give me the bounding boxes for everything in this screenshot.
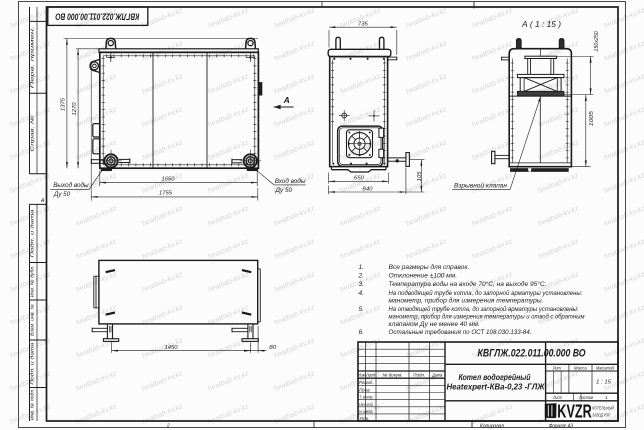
svg-text:Отклонение ±100 мм.: Отклонение ±100 мм. [389,272,458,279]
svg-text:Все размеры для справок.: Все размеры для справок. [389,263,470,271]
svg-text:1270: 1270 [72,102,78,116]
svg-text:Нач. отд.: Нач. отд. [359,402,373,407]
svg-text:1755: 1755 [159,191,173,197]
svg-text:Листов: Листов [578,395,594,400]
svg-text:4.: 4. [359,290,365,297]
svg-text:Подп. и дата: Подп. и дата [30,342,35,385]
svg-text:Температура воды на входе 70°С: Температура воды на входе 70°С, на выход… [389,280,547,288]
svg-text:Утв.: Утв. [359,416,369,421]
svg-text:А: А [283,95,290,105]
svg-text:650: 650 [354,176,365,182]
svg-text:Изм: Изм [358,373,366,378]
svg-text:Лист: Лист [365,373,375,378]
svg-text:840: 840 [363,187,374,193]
svg-text:5.: 5. [359,306,365,313]
svg-text:2: 2 [166,423,170,428]
svg-text:Т. контр.: Т. контр. [359,395,373,400]
svg-text:Пров.: Пров. [359,387,370,392]
svg-text:На подводящей трубе котла, до: На подводящей трубе котла, до запорной а… [389,289,583,297]
svg-text:150х250: 150х250 [594,30,600,51]
svg-text:105: 105 [417,171,423,182]
svg-text:80: 80 [269,345,277,351]
svg-text:Лист: Лист [552,395,562,400]
svg-text:Инв. № подл.: Инв. № подл. [30,388,35,420]
svg-text:KVZR: KVZR [557,401,592,422]
svg-text:Перв. примен.: Перв. примен. [30,26,35,88]
svg-text:1005: 1005 [589,110,595,126]
svg-text:ЗАВОД РЭП: ЗАВОД РЭП [592,413,611,418]
svg-text:манометр, прибор для измерения: манометр, прибор для измерения температу… [389,313,585,321]
svg-text:Котел водогрейный: Котел водогрейный [459,373,531,382]
svg-text:Дата: Дата [431,373,442,378]
svg-text:клапаном Ду не менее 40 мм.: клапаном Ду не менее 40 мм. [389,321,481,328]
svg-text:1 : 15: 1 : 15 [596,380,612,386]
svg-text:1450: 1450 [165,345,179,351]
svg-text:Выход воды: Выход воды [53,181,89,189]
svg-text:Остальные требования по ОСТ 10: Остальные требования по ОСТ 108.030.133-… [389,328,532,336]
svg-text:Ду 50: Ду 50 [275,187,293,194]
svg-text:Heatexpert-КВа-0,23 -ГЛЖ: Heatexpert-КВа-0,23 -ГЛЖ [447,383,546,392]
svg-text:Инв. № дубл.: Инв. № дубл. [30,265,35,297]
svg-text:Вход воды: Вход воды [275,177,306,185]
svg-text:Справ. №: Справ. № [30,115,35,151]
svg-text:Формат А3: Формат А3 [549,423,573,429]
svg-text:А: А [40,198,45,204]
svg-text:КВГЛЖ.022.011.00.000 ВО: КВГЛЖ.022.011.00.000 ВО [478,348,586,360]
svg-text:Масштаб: Масштаб [596,366,615,371]
svg-text:3.: 3. [359,281,365,288]
svg-text:Копировал: Копировал [480,423,504,429]
svg-text:Подп.: Подп. [413,373,425,378]
svg-text:Н. контр.: Н. контр. [359,409,373,414]
svg-text:КВГЛЖ.022.011.00.000 ВО: КВГЛЖ.022.011.00.000 ВО [55,11,139,21]
svg-text:Лит.: Лит. [552,366,562,371]
svg-text:Ду 50: Ду 50 [53,191,70,198]
svg-text:Разраб.: Разраб. [359,380,373,385]
svg-text:Подп. и дата: Подп. и дата [30,209,35,258]
svg-text:№ докум.: № докум. [383,373,403,378]
svg-text:На отводящей трубе котла, до з: На отводящей трубе котла, до запорной ар… [389,305,579,313]
svg-text:1.: 1. [359,264,365,271]
svg-text:1375: 1375 [61,97,67,111]
svg-text:1650: 1650 [162,176,176,182]
svg-text:2.: 2. [358,272,365,279]
svg-text:Взрывной клапан: Взрывной клапан [454,181,507,189]
svg-text:манометр, прибор для измерения: манометр, прибор для измерения температу… [389,297,544,305]
svg-text:Взам. инв. №: Взам. инв. № [30,304,35,336]
svg-text:6.: 6. [359,329,365,336]
svg-text:А ( 1 : 15 ): А ( 1 : 15 ) [521,19,561,29]
svg-text:735: 735 [358,22,369,28]
svg-text:КОТЕЛЬНЫЙ: КОТЕЛЬНЫЙ [592,406,614,411]
svg-text:Масса: Масса [574,366,588,371]
